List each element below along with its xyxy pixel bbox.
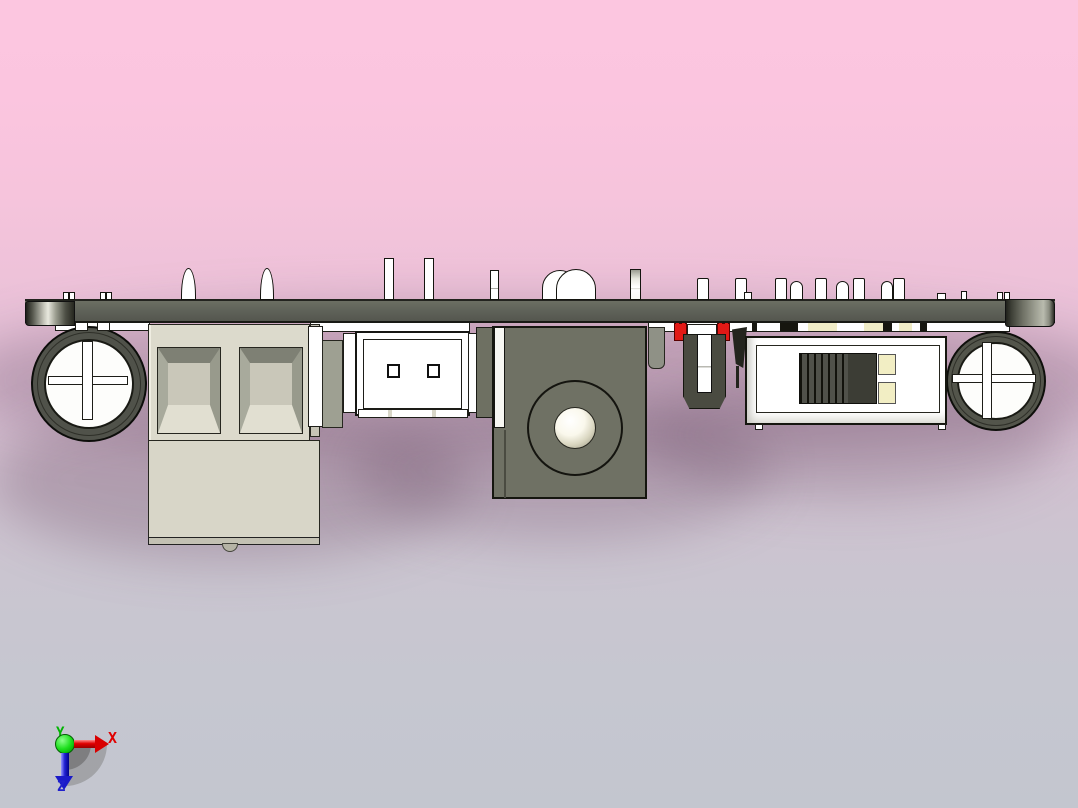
strip-pad-dark — [780, 323, 798, 331]
switch-contact-pad — [878, 382, 896, 404]
axis-origin-ball — [55, 734, 75, 754]
right-capacitor-vent-v — [982, 342, 992, 419]
jst-side-gray — [322, 340, 343, 428]
jst-pin-hole — [387, 364, 400, 378]
cap-pin — [775, 278, 787, 300]
terminal-block-lower — [148, 440, 320, 539]
axis-x-arrowhead — [95, 735, 109, 753]
metal-pin — [630, 269, 641, 300]
strip-pad-dark — [752, 323, 757, 331]
jst-side-white — [308, 326, 323, 427]
polarized-component-slot — [697, 334, 712, 393]
dome-pin — [881, 281, 893, 300]
pin-stub — [937, 293, 946, 300]
board-end-right — [1005, 299, 1055, 327]
strip-pad-cream — [808, 323, 837, 331]
axis-x-arrow — [74, 740, 95, 748]
jst-leg-slot — [388, 410, 392, 417]
blade-lead — [736, 366, 739, 388]
pcb-board — [25, 299, 1055, 323]
strip-pad-dark — [920, 323, 927, 331]
strip-pad-cream — [864, 323, 883, 331]
bullet-pin — [260, 268, 274, 300]
jack-flange — [494, 327, 505, 428]
cap-pin — [853, 278, 865, 300]
terminal-port-left — [158, 348, 220, 433]
terminal-port-right — [240, 348, 302, 433]
cad-viewport[interactable]: Y X Z — [0, 0, 1078, 808]
pin-stub — [961, 291, 967, 300]
jst-connector-face — [363, 339, 462, 409]
switch-leg — [938, 424, 946, 430]
header-pin-tall — [424, 258, 434, 300]
bullet-pin — [181, 268, 196, 300]
pin-stub — [997, 292, 1003, 300]
dome-pin — [790, 281, 803, 300]
cap-pin — [893, 278, 905, 300]
left-capacitor-vent-v — [82, 341, 93, 420]
axis-z-arrow — [61, 753, 69, 777]
axis-x-label: X — [108, 731, 117, 746]
mount-bracket-right-of-jack — [648, 327, 665, 369]
dome-pin — [836, 281, 849, 300]
strip-pad-cream — [899, 323, 912, 331]
jst-leg-slot — [432, 410, 436, 417]
axis-z-label: Z — [57, 780, 65, 794]
jst-legs-strip — [358, 409, 468, 418]
jack-seam — [504, 430, 506, 498]
pin-stub — [69, 292, 75, 300]
cap-pin — [697, 278, 709, 300]
led-dome — [556, 269, 596, 300]
switch-contact-pad — [878, 354, 896, 375]
right-capacitor-vent-h — [952, 374, 1036, 383]
pin-stub — [1004, 292, 1010, 300]
jack-center-pin — [554, 407, 596, 449]
pin-stub — [106, 292, 112, 300]
cap-pin — [815, 278, 827, 300]
jst-pin-hole — [427, 364, 440, 378]
pin-stub — [744, 292, 752, 300]
board-end-left — [25, 301, 75, 326]
header-pin — [490, 270, 499, 300]
switch-leg — [755, 424, 763, 430]
switch-actuator-ridges — [800, 354, 848, 403]
header-pin-tall — [384, 258, 394, 300]
strip-pad-dark — [883, 323, 892, 331]
